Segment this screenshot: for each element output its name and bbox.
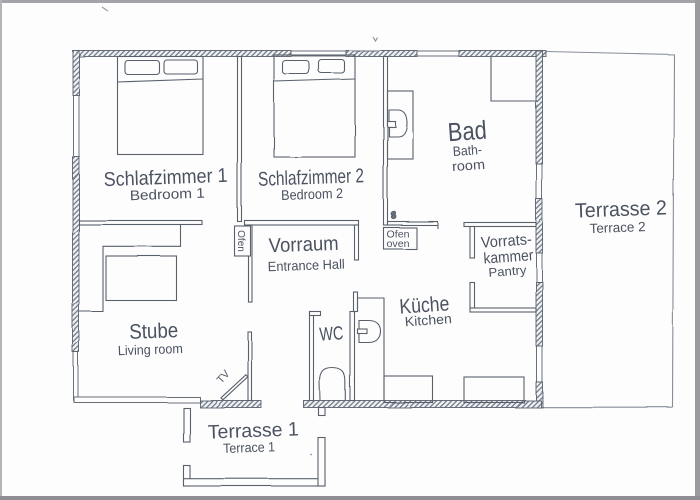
svg-text:Bedroom 2: Bedroom 2 [281, 185, 344, 203]
svg-text:Terrace 1: Terrace 1 [223, 439, 275, 456]
svg-text:Terrace 2: Terrace 2 [589, 219, 645, 236]
svg-text:Living room: Living room [118, 341, 183, 358]
svg-text:Terrasse 2: Terrasse 2 [575, 196, 668, 222]
svg-text:Ofen: Ofen [235, 230, 246, 252]
svg-text:Vorraum: Vorraum [268, 233, 339, 257]
svg-text:WC: WC [319, 323, 344, 346]
svg-text:Stube: Stube [129, 319, 179, 344]
svg-text:oven: oven [387, 238, 410, 250]
svg-text:room: room [451, 157, 485, 174]
svg-text:Pantry: Pantry [488, 263, 528, 280]
svg-text:Bedroom 1: Bedroom 1 [130, 185, 206, 204]
svg-text:Entrance Hall: Entrance Hall [268, 257, 345, 275]
